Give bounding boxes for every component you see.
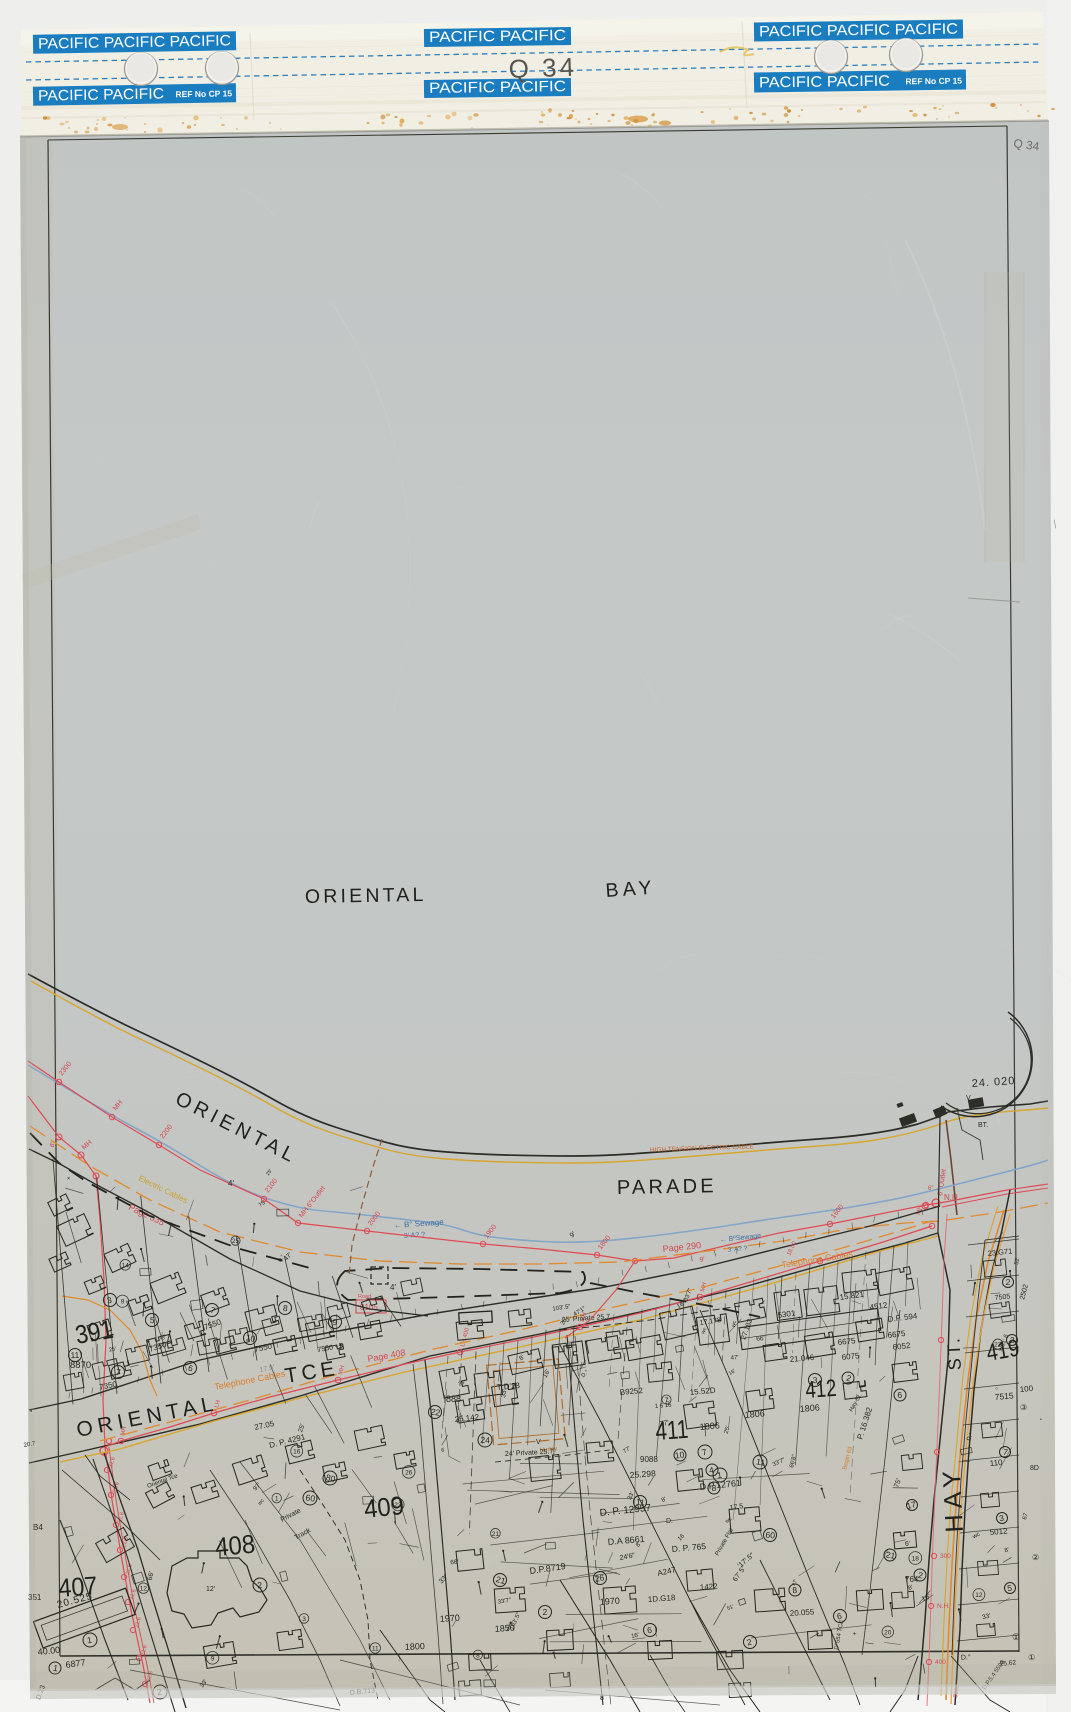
svg-text:1970: 1970	[599, 1596, 620, 1607]
svg-text:47′: 47′	[731, 1355, 740, 1362]
svg-text:26: 26	[405, 1469, 413, 1476]
svg-text:11: 11	[635, 1497, 645, 1508]
svg-text:1800: 1800	[405, 1641, 426, 1652]
svg-text:5012: 5012	[989, 1526, 1008, 1537]
svg-text:77′: 77′	[659, 1420, 670, 1428]
svg-text:N.H.: N.H.	[944, 1193, 960, 1202]
svg-text:10: 10	[674, 1449, 685, 1460]
svg-text:100: 100	[1019, 1384, 1034, 1394]
svg-text:8: 8	[476, 1652, 480, 1659]
svg-text:1970: 1970	[439, 1613, 460, 1624]
svg-text:24: 24	[480, 1435, 490, 1445]
svg-text:BAY: BAY	[605, 877, 657, 902]
svg-text:Q 34: Q 34	[508, 52, 577, 84]
svg-text:21: 21	[492, 1531, 500, 1538]
svg-text:1850: 1850	[494, 1623, 515, 1634]
svg-text:4′: 4′	[390, 1283, 396, 1292]
svg-text:6075: 6075	[841, 1351, 860, 1362]
svg-text:Road: Road	[358, 1294, 371, 1300]
svg-text:25: 25	[232, 1238, 240, 1245]
svg-text:14: 14	[122, 1262, 130, 1269]
svg-text:60: 60	[305, 1492, 316, 1503]
svg-text:11: 11	[372, 1646, 379, 1653]
svg-text:1806: 1806	[799, 1402, 820, 1414]
svg-text:12′: 12′	[206, 1586, 216, 1593]
svg-text:2: 2	[542, 1607, 547, 1617]
svg-text:8: 8	[711, 1483, 716, 1493]
svg-text:D.: D.	[666, 1518, 673, 1525]
svg-text:①: ①	[1028, 1653, 1035, 1662]
svg-text:×: ×	[67, 1176, 71, 1182]
svg-text:3: 3	[813, 1375, 818, 1385]
svg-text:N.H.: N.H.	[937, 1603, 950, 1610]
svg-text:③: ③	[1020, 1403, 1027, 1412]
svg-text:12: 12	[975, 1592, 983, 1599]
svg-text:16: 16	[293, 1449, 301, 1456]
svg-text:22: 22	[994, 1342, 1002, 1349]
svg-text:PACIFIC PACIFIC PACIFIC: PACIFIC PACIFIC PACIFIC	[759, 21, 958, 41]
svg-text:ST.: ST.	[943, 1335, 965, 1371]
svg-text:7: 7	[665, 1397, 669, 1404]
svg-text:PARADE: PARADE	[617, 1175, 717, 1199]
svg-text:12: 12	[140, 1586, 148, 1593]
svg-text:20: 20	[884, 1629, 892, 1636]
svg-text:ORIENTAL: ORIENTAL	[305, 884, 427, 908]
svg-text:—: —	[1050, 519, 1061, 530]
svg-text:REF No CP 15: REF No CP 15	[905, 76, 962, 87]
svg-text:①: ①	[1012, 1632, 1020, 1642]
svg-text:V: V	[966, 1095, 971, 1102]
svg-text:9: 9	[211, 1655, 215, 1662]
svg-text:6″→: 6″→	[928, 1186, 939, 1192]
svg-text:D.°: D.°	[961, 1653, 971, 1661]
svg-text:20.055: 20.055	[790, 1607, 816, 1618]
svg-text:②: ②	[1032, 1553, 1039, 1562]
svg-text:1806: 1806	[699, 1420, 720, 1432]
svg-text:11: 11	[70, 1350, 79, 1360]
svg-text:300: 300	[940, 1553, 951, 1560]
svg-text:3: 3	[302, 1616, 306, 1623]
svg-text:PACIFIC PACIFIC: PACIFIC PACIFIC	[759, 73, 890, 92]
svg-text:7515: 7515	[994, 1390, 1014, 1402]
svg-text:PACIFIC PACIFIC: PACIFIC PACIFIC	[38, 85, 164, 104]
svg-text:REF No CP 15: REF No CP 15	[175, 88, 232, 99]
svg-text:5: 5	[149, 1315, 155, 1325]
svg-text:22: 22	[430, 1406, 441, 1417]
svg-text:8D: 8D	[1030, 1465, 1039, 1472]
svg-text:412: 412	[805, 1375, 838, 1404]
svg-text:2: 2	[1010, 1335, 1016, 1345]
svg-text:60: 60	[765, 1530, 776, 1541]
svg-text:V: V	[536, 1439, 541, 1446]
svg-text:1806: 1806	[744, 1408, 765, 1420]
svg-text:○: ○	[995, 1386, 998, 1392]
svg-text:66′: 66′	[756, 1335, 766, 1343]
svg-text:6675: 6675	[837, 1336, 856, 1347]
svg-text:66′: 66′	[450, 1559, 460, 1567]
svg-text:9088: 9088	[640, 1455, 658, 1464]
svg-text:BT.: BT.	[978, 1122, 988, 1129]
svg-text:HAY: HAY	[937, 1464, 968, 1533]
svg-text:23: 23	[394, 1502, 402, 1509]
svg-text:18: 18	[912, 1556, 920, 1563]
svg-text:8870: 8870	[70, 1360, 91, 1371]
svg-text:PACIFIC PACIFIC: PACIFIC PACIFIC	[429, 27, 566, 46]
svg-text:1422: 1422	[700, 1582, 719, 1592]
svg-text:1: 1	[275, 1496, 279, 1503]
svg-text:9: 9	[121, 1299, 125, 1306]
svg-text:2: 2	[1006, 1277, 1011, 1287]
svg-text:PACIFIC PACIFIC PACIFIC: PACIFIC PACIFIC PACIFIC	[38, 32, 231, 52]
svg-text:4′: 4′	[228, 1179, 234, 1188]
